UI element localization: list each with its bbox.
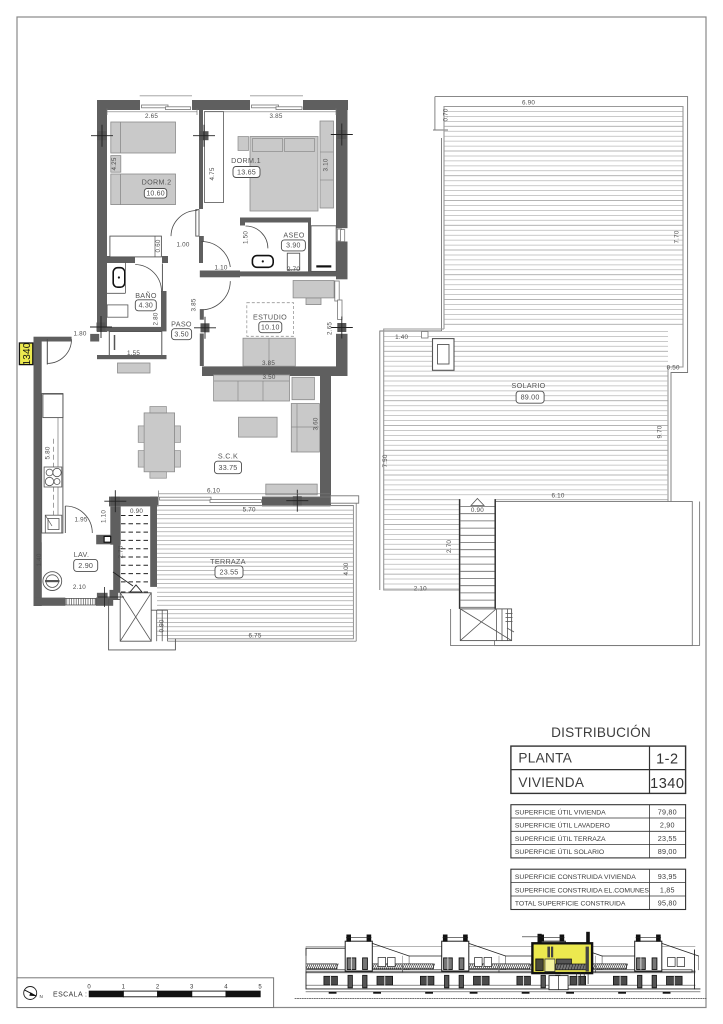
svg-text:23,55: 23,55	[658, 834, 677, 843]
svg-text:SOLARIO: SOLARIO	[511, 381, 545, 390]
svg-text:SUPERFICIE CONSTRUIDA EL.COMUN: SUPERFICIE CONSTRUIDA EL.COMUNES	[515, 887, 650, 894]
svg-text:DISTRIBUCIÓN: DISTRIBUCIÓN	[551, 725, 651, 740]
svg-text:1.95: 1.95	[74, 517, 87, 524]
svg-text:N: N	[40, 994, 43, 999]
svg-text:1,85: 1,85	[660, 885, 675, 894]
svg-text:PASO: PASO	[171, 320, 192, 329]
svg-text:7.70: 7.70	[674, 230, 681, 243]
svg-text:0.90: 0.90	[130, 508, 143, 515]
svg-text:4.75: 4.75	[209, 167, 216, 180]
svg-text:9.70: 9.70	[657, 425, 664, 438]
svg-text:SUPERFICIE ÚTIL TERRAZA: SUPERFICIE ÚTIL TERRAZA	[515, 834, 606, 843]
svg-text:0.90: 0.90	[158, 619, 165, 632]
svg-text:0.70: 0.70	[443, 108, 450, 121]
svg-text:10.60: 10.60	[146, 191, 165, 198]
svg-text:3.90: 3.90	[286, 243, 300, 250]
svg-text:2.10: 2.10	[73, 584, 86, 591]
svg-text:ESTUDIO: ESTUDIO	[253, 313, 287, 322]
svg-text:1.10: 1.10	[214, 264, 227, 271]
svg-text:4.00: 4.00	[343, 562, 350, 575]
svg-text:4: 4	[224, 984, 228, 990]
svg-text:2.80: 2.80	[152, 312, 159, 325]
svg-text:4.25: 4.25	[111, 157, 118, 170]
svg-text:ASEO: ASEO	[283, 231, 304, 240]
svg-text:2,90: 2,90	[660, 821, 675, 830]
svg-text:5.70: 5.70	[243, 507, 256, 514]
svg-text:3.85: 3.85	[190, 298, 197, 311]
svg-text:6.10: 6.10	[551, 493, 564, 500]
svg-text:13.65: 13.65	[237, 167, 256, 176]
svg-text:SUPERFICIE ÚTIL VIVIENDA: SUPERFICIE ÚTIL VIVIENDA	[515, 807, 606, 816]
svg-text:4.30: 4.30	[139, 303, 153, 310]
svg-text:1.80: 1.80	[73, 331, 86, 338]
svg-text:23.55: 23.55	[220, 567, 239, 576]
svg-text:TERRAZA: TERRAZA	[210, 557, 246, 566]
svg-text:SUPERFICIE ÚTIL LAVADERO: SUPERFICIE ÚTIL LAVADERO	[515, 821, 610, 830]
svg-text:6.75: 6.75	[248, 633, 261, 640]
svg-text:1.40: 1.40	[395, 334, 408, 341]
svg-text:2.65: 2.65	[145, 113, 158, 120]
svg-text:1340: 1340	[22, 342, 33, 365]
svg-text:95,80: 95,80	[658, 899, 677, 908]
svg-text:1: 1	[122, 984, 126, 990]
svg-text:0.60: 0.60	[155, 239, 162, 252]
svg-text:ESCALA :: ESCALA :	[53, 992, 87, 999]
svg-text:3.10: 3.10	[323, 158, 330, 171]
svg-text:2.65: 2.65	[326, 322, 333, 335]
svg-text:DORM.1: DORM.1	[231, 156, 261, 165]
svg-text:SUPERFICIE ÚTIL SOLARIO: SUPERFICIE ÚTIL SOLARIO	[515, 847, 604, 856]
svg-text:VIVIENDA: VIVIENDA	[518, 775, 584, 790]
svg-text:1.55: 1.55	[127, 350, 140, 357]
svg-text:3.85: 3.85	[269, 113, 282, 120]
svg-text:3.85: 3.85	[262, 360, 275, 367]
svg-text:1.50: 1.50	[243, 231, 250, 244]
svg-text:10.10: 10.10	[261, 325, 280, 332]
svg-text:2: 2	[156, 984, 160, 990]
svg-text:2.70: 2.70	[446, 540, 453, 553]
svg-text:2.90: 2.90	[78, 561, 93, 570]
svg-text:2.70: 2.70	[287, 266, 300, 273]
svg-text:3: 3	[190, 984, 194, 990]
svg-text:33.75: 33.75	[219, 463, 238, 472]
svg-text:PLANTA: PLANTA	[518, 751, 572, 766]
svg-text:3.50: 3.50	[262, 374, 275, 381]
svg-text:1340: 1340	[650, 776, 684, 792]
svg-text:0.90: 0.90	[471, 507, 484, 514]
svg-text:93,95: 93,95	[658, 872, 677, 881]
svg-text:1.00: 1.00	[176, 242, 189, 249]
svg-text:1-2: 1-2	[656, 752, 678, 768]
svg-text:BAÑO: BAÑO	[135, 291, 157, 300]
svg-text:5.80: 5.80	[44, 446, 51, 459]
svg-text:89,00: 89,00	[658, 847, 677, 856]
svg-text:1.40: 1.40	[36, 553, 43, 566]
svg-text:3.50: 3.50	[174, 332, 188, 339]
svg-text:3.60: 3.60	[312, 417, 319, 430]
svg-text:79,80: 79,80	[658, 807, 677, 816]
svg-text:89.00: 89.00	[521, 393, 540, 402]
svg-text:1.10: 1.10	[101, 510, 108, 523]
svg-text:2.70: 2.70	[118, 545, 125, 558]
svg-text:DORM.2: DORM.2	[142, 178, 172, 187]
svg-text:TOTAL SUPERFICIE CONSTRUIDA: TOTAL SUPERFICIE CONSTRUIDA	[515, 901, 626, 908]
svg-text:S.C.K: S.C.K	[218, 452, 238, 461]
svg-text:6.10: 6.10	[207, 488, 220, 495]
svg-text:0.50: 0.50	[667, 364, 680, 371]
svg-text:0: 0	[87, 984, 91, 990]
svg-text:LAV.: LAV.	[74, 550, 90, 559]
svg-text:7.50: 7.50	[382, 454, 389, 467]
svg-text:SUPERFICIE CONSTRUIDA VIVIENDA: SUPERFICIE CONSTRUIDA VIVIENDA	[515, 874, 636, 881]
svg-text:6.90: 6.90	[522, 100, 535, 107]
svg-text:5: 5	[258, 984, 262, 990]
svg-text:2.10: 2.10	[414, 585, 427, 592]
